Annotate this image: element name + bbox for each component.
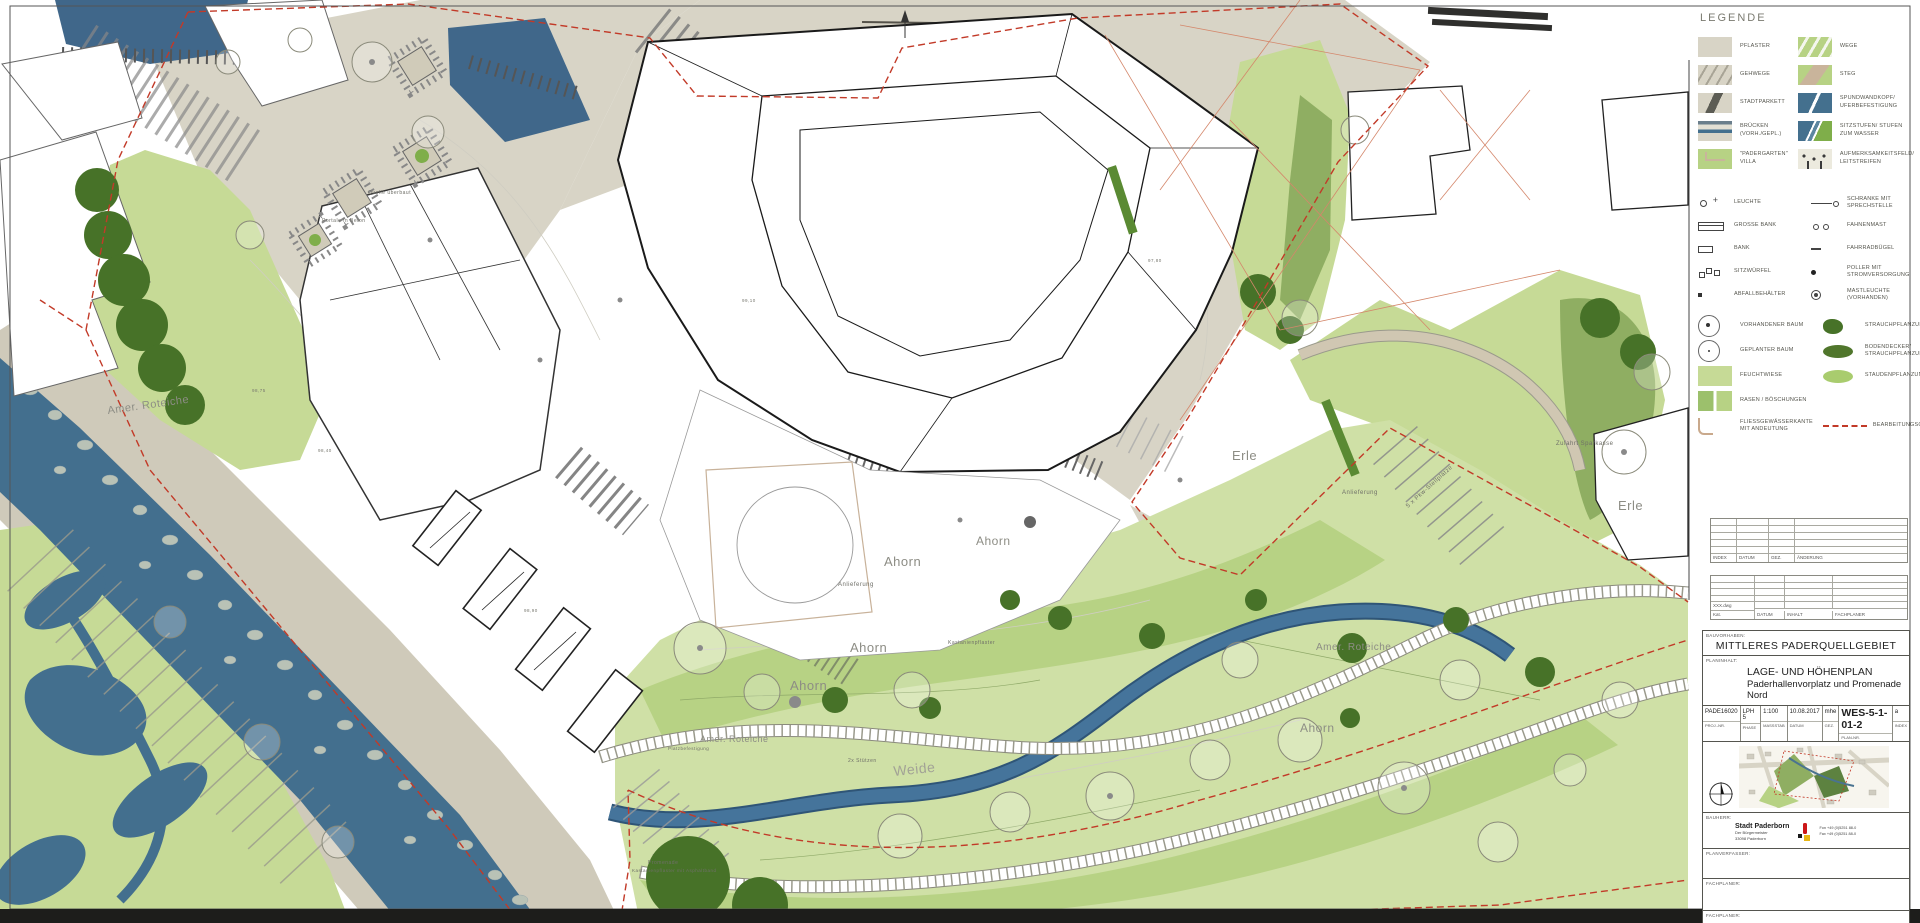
fachplaner-section-2: FACHPLANER: (1703, 911, 1909, 923)
revision-header: DATUM (1737, 554, 1769, 562)
plan-subtitle: Paderhallenvorplatz und Promenade Nord (1747, 679, 1905, 701)
legend-item-label: STEG (1840, 71, 1856, 78)
bauherr-fax: Fax +49 (0)5251 88-0 (1819, 832, 1856, 838)
plan-label: Ahorn (976, 534, 1011, 548)
legend-item (1823, 390, 1920, 412)
revision-header: ÄNDERUNG (1795, 554, 1907, 562)
legend-item-label: RASEN / BÖSCHUNGEN (1740, 397, 1807, 404)
plan-meta-row: PADE16020 PROJ.-NR. LPH 5 PHASE 1:100 MA… (1703, 706, 1909, 742)
legend-symbol-icon (1698, 293, 1702, 297)
legend-item-label: GROSSE BANK (1734, 222, 1776, 229)
bauvorhaben-label: BAUVORHABEN: (1706, 633, 1745, 638)
legend-planting-icon (1698, 366, 1732, 386)
doc-header: FACHPLANER (1833, 611, 1907, 619)
legend-item: PFLASTER (1698, 34, 1788, 59)
legend-panel: LEGENDE PFLASTER WEGE GEHWEGE STEG STADT… (1698, 12, 1914, 437)
legend-planting-icon (1823, 425, 1867, 427)
paderborn-logo (1795, 823, 1813, 841)
date: 10.08.2017 (1788, 706, 1822, 721)
legend-symbol-icon (1811, 290, 1821, 300)
legend-planting-icon (1698, 340, 1720, 362)
legend-item-label: FEUCHTWIESE (1740, 372, 1782, 379)
legend-item: FAHNENMAST (1811, 216, 1914, 236)
legend-item: BODENDECKER/ STRAUCHPFLANZUNG (1823, 340, 1920, 362)
legend-item: SCHRANKE MIT SPRECHSTELLE (1811, 193, 1914, 213)
legend-planting-icon (1698, 315, 1720, 337)
legend-item-label: SITZWÜRFEL (1734, 268, 1771, 275)
legend-item: POLLER MIT STROMVERSORGUNG (1811, 262, 1914, 282)
legend-item-label: FLIESSGEWÄSSERKANTE MIT ANDEUTUNG (1740, 419, 1813, 433)
bauherr-label: BAUHERR: (1706, 815, 1732, 820)
doc-header: Kat. (1711, 611, 1755, 619)
legend-title: LEGENDE (1700, 12, 1914, 24)
legend-item-label: GEPLANTER BAUM (1740, 347, 1794, 354)
legend-item-label: SPUNDWANDKOPF/ UFERBEFESTIGUNG (1840, 95, 1914, 109)
legend-item: FLIESSGEWÄSSERKANTE MIT ANDEUTUNG (1698, 415, 1813, 437)
plan-sheet: AhornAhornAhornAhornAhornWeideErleErleAm… (0, 0, 1920, 923)
legend-symbol-icon (1698, 266, 1722, 278)
legend-item: AUFMERKSAMKEITSFELD/ LEITSTREIFEN (1798, 146, 1914, 171)
plan-title: LAGE- UND HÖHENPLAN (1747, 666, 1905, 678)
plan-label: Platzbefestigung (668, 746, 709, 751)
legend-item: MASTLEUCHTE (VORHANDEN) (1811, 285, 1914, 305)
legend-item-label: BEARBEITUNGSGRENZE (1873, 422, 1920, 429)
bauherr-name: Stadt Paderborn (1735, 823, 1789, 830)
legend-item: FAHRRADBÜGEL (1811, 239, 1914, 259)
legend-item: BANK (1698, 239, 1801, 259)
legend-item-label: BODENDECKER/ STRAUCHPFLANZUNG (1865, 344, 1920, 358)
plan-label: 99,10 (742, 298, 756, 303)
legend-item: GEPLANTER BAUM (1698, 340, 1813, 362)
bauherr-section: BAUHERR: Stadt Paderborn Der Bürgermeist… (1703, 813, 1909, 849)
legend-planting-icon (1698, 391, 1732, 411)
legend-swatch-icon (1698, 93, 1732, 113)
project-title: MITTLERES PADERQUELLGEBIET (1707, 640, 1905, 652)
plan-label: 97,80 (1148, 258, 1162, 263)
legend-item-label: BANK (1734, 245, 1750, 252)
revision-table: INDEX DATUM GEZ. ÄNDERUNG (1710, 518, 1908, 563)
legend-item: "PADERGARTEN" VILLA (1698, 146, 1788, 171)
legend-swatch-icon (1698, 121, 1732, 141)
planinhalt-label: PLANINHALT: (1706, 658, 1737, 663)
plan-label: 98,75 (252, 388, 266, 393)
legend-planting-icon (1823, 370, 1853, 383)
legend-item-label: AUFMERKSAMKEITSFELD/ LEITSTREIFEN (1840, 151, 1914, 165)
plan-label: Ahorn (884, 554, 921, 569)
phase: LPH 5 (1741, 706, 1761, 723)
legend-swatch-icon (1698, 149, 1732, 169)
legend-item-label: MASTLEUCHTE (VORHANDEN) (1847, 288, 1914, 302)
legend-item-label: STAUDENPFLANZUNG (1865, 372, 1920, 379)
legend-symbol-icon (1698, 246, 1713, 253)
plan-label: Erle (1232, 448, 1257, 463)
revision-header: GEZ. (1769, 554, 1795, 562)
plan-label: Anlieferung (1342, 490, 1378, 496)
locator-row (1703, 742, 1909, 813)
legend-item: SITZWÜRFEL (1698, 262, 1801, 282)
legend-item: GEHWEGE (1698, 62, 1788, 87)
legend-symbol-icon (1811, 270, 1816, 275)
legend-item: STRAUCHPFLANZUNG (1823, 315, 1920, 337)
legend-surfaces: PFLASTER WEGE GEHWEGE STEG STADTPARKETT … (1698, 34, 1914, 171)
legend-item: BRÜCKEN (VORH./GEPL.) (1698, 118, 1788, 143)
project-number: PADE16020 (1703, 706, 1740, 721)
legend-item: WEGE (1798, 34, 1914, 59)
legend-symbol-icon (1811, 222, 1835, 230)
legend-planting-icon (1823, 319, 1843, 334)
plan-label: Amer. Roteiche (700, 734, 769, 744)
legend-item-label: PFLASTER (1740, 43, 1770, 50)
legend-item: RASEN / BÖSCHUNGEN (1698, 390, 1813, 412)
doc-header: INHALT (1785, 611, 1833, 619)
legend-item: STEG (1798, 62, 1914, 87)
legend-item-label: "PADERGARTEN" VILLA (1740, 151, 1788, 165)
legend-swatch-icon (1798, 149, 1832, 169)
legend-item: GROSSE BANK (1698, 216, 1801, 236)
legend-item: STADTPARKETT (1698, 90, 1788, 115)
legend-item-label: VORHANDENER BAUM (1740, 322, 1803, 329)
legend-item: FEUCHTWIESE (1698, 365, 1813, 387)
legend-symbols: LEUCHTE SCHRANKE MIT SPRECHSTELLE GROSSE… (1698, 193, 1914, 305)
legend-swatch-icon (1698, 65, 1732, 85)
legend-item: LEUCHTE (1698, 193, 1801, 213)
fachplaner-section: FACHPLANER: (1703, 879, 1909, 911)
scale: 1:100 (1761, 706, 1787, 721)
locator-map (1739, 746, 1889, 808)
legend-swatch-icon (1698, 37, 1732, 57)
legend-item-label: ABFALLBEHÄLTER (1734, 291, 1786, 298)
plan-label: Erle (1618, 498, 1643, 513)
legend-planting-icon (1698, 418, 1713, 435)
document-table: XXX.dwg Kat. DATUM INHALT FACHPLANER (1710, 575, 1908, 620)
plan-label: Kastanienpflaster (948, 640, 995, 646)
legend-swatch-icon (1798, 93, 1832, 113)
legend-plantings: VORHANDENER BAUM STRAUCHPFLANZUNG GEPLAN… (1698, 315, 1914, 437)
legend-item-label: FAHRRADBÜGEL (1847, 245, 1894, 252)
legend-item: SITZSTUFEN/ STUFEN ZUM WASSER (1798, 118, 1914, 143)
plan-label: 98,40 (318, 448, 332, 453)
legend-symbol-icon (1811, 248, 1821, 250)
legend-item: VORHANDENER BAUM (1698, 315, 1813, 337)
site-plan-drawing: AhornAhornAhornAhornAhornWeideErleErleAm… (0, 0, 1920, 923)
legend-item-label: POLLER MIT STROMVERSORGUNG (1847, 265, 1914, 279)
legend-item-label: STADTPARKETT (1740, 99, 1785, 106)
revision-header: INDEX (1711, 554, 1737, 562)
legend-item: BEARBEITUNGSGRENZE (1823, 415, 1920, 437)
plan-label: Ahorn (790, 678, 827, 693)
plan-label: Ahorn (1300, 721, 1335, 735)
plan-label: 2x Stützen (848, 758, 877, 764)
legend-item: STAUDENPFLANZUNG (1823, 365, 1920, 387)
legend-item-label: WEGE (1840, 43, 1858, 50)
project-row: BAUVORHABEN: MITTLERES PADERQUELLGEBIET (1703, 631, 1909, 656)
title-block: INDEX DATUM GEZ. ÄNDERUNG XXX.dwg Kat. D… (1702, 518, 1910, 923)
plan-label: Kastanienpflaster mit Asphaltband (632, 868, 717, 873)
doc-header: DATUM (1755, 611, 1785, 619)
plan-label: Anlieferung (838, 582, 874, 588)
legend-item-label: STRAUCHPFLANZUNG (1865, 322, 1920, 329)
legend-symbol-icon (1698, 197, 1722, 209)
plan-number: WES-5-1-01-2 (1839, 706, 1891, 733)
plan-label: Ahorn (850, 640, 887, 655)
legend-item-label: SCHRANKE MIT SPRECHSTELLE (1847, 196, 1914, 210)
plan-label: Amer. Roteiche (1316, 642, 1391, 653)
legend-item-label: GEHWEGE (1740, 71, 1770, 78)
planverfasser-section: PLANVERFASSER: (1703, 849, 1909, 879)
doc-filename: XXX.dwg (1711, 602, 1755, 611)
legend-item-label: SITZSTUFEN/ STUFEN ZUM WASSER (1840, 123, 1914, 137)
bauherr-line2: 33098 Paderborn (1735, 836, 1789, 842)
legend-item: ABFALLBEHÄLTER (1698, 285, 1801, 305)
plan-label: Quelle überbaut (368, 190, 411, 196)
title-block-main: BAUVORHABEN: MITTLERES PADERQUELLGEBIET … (1702, 630, 1910, 923)
plan-label: Zufahrt Sparkasse (1556, 441, 1614, 447)
legend-swatch-icon (1798, 121, 1832, 141)
index: a (1893, 706, 1909, 721)
legend-planting-icon (1823, 345, 1853, 358)
legend-symbol-icon (1811, 199, 1839, 207)
legend-swatch-icon (1798, 65, 1832, 85)
plan-content-row: PLANINHALT: LAGE- UND HÖHENPLAN Paderhal… (1703, 656, 1909, 706)
plan-label: Promenade (648, 860, 678, 866)
compass-icon (1707, 780, 1735, 808)
legend-item-label: FAHNENMAST (1847, 222, 1887, 229)
plan-label: Portale in Beton (322, 218, 366, 224)
legend-item-label: BRÜCKEN (VORH./GEPL.) (1740, 123, 1788, 137)
legend-item-label: LEUCHTE (1734, 199, 1761, 206)
plan-label: 98,90 (524, 608, 538, 613)
drawn-by: mhe (1823, 706, 1839, 721)
legend-item: SPUNDWANDKOPF/ UFERBEFESTIGUNG (1798, 90, 1914, 115)
legend-swatch-icon (1798, 37, 1832, 57)
legend-symbol-icon (1698, 222, 1724, 231)
